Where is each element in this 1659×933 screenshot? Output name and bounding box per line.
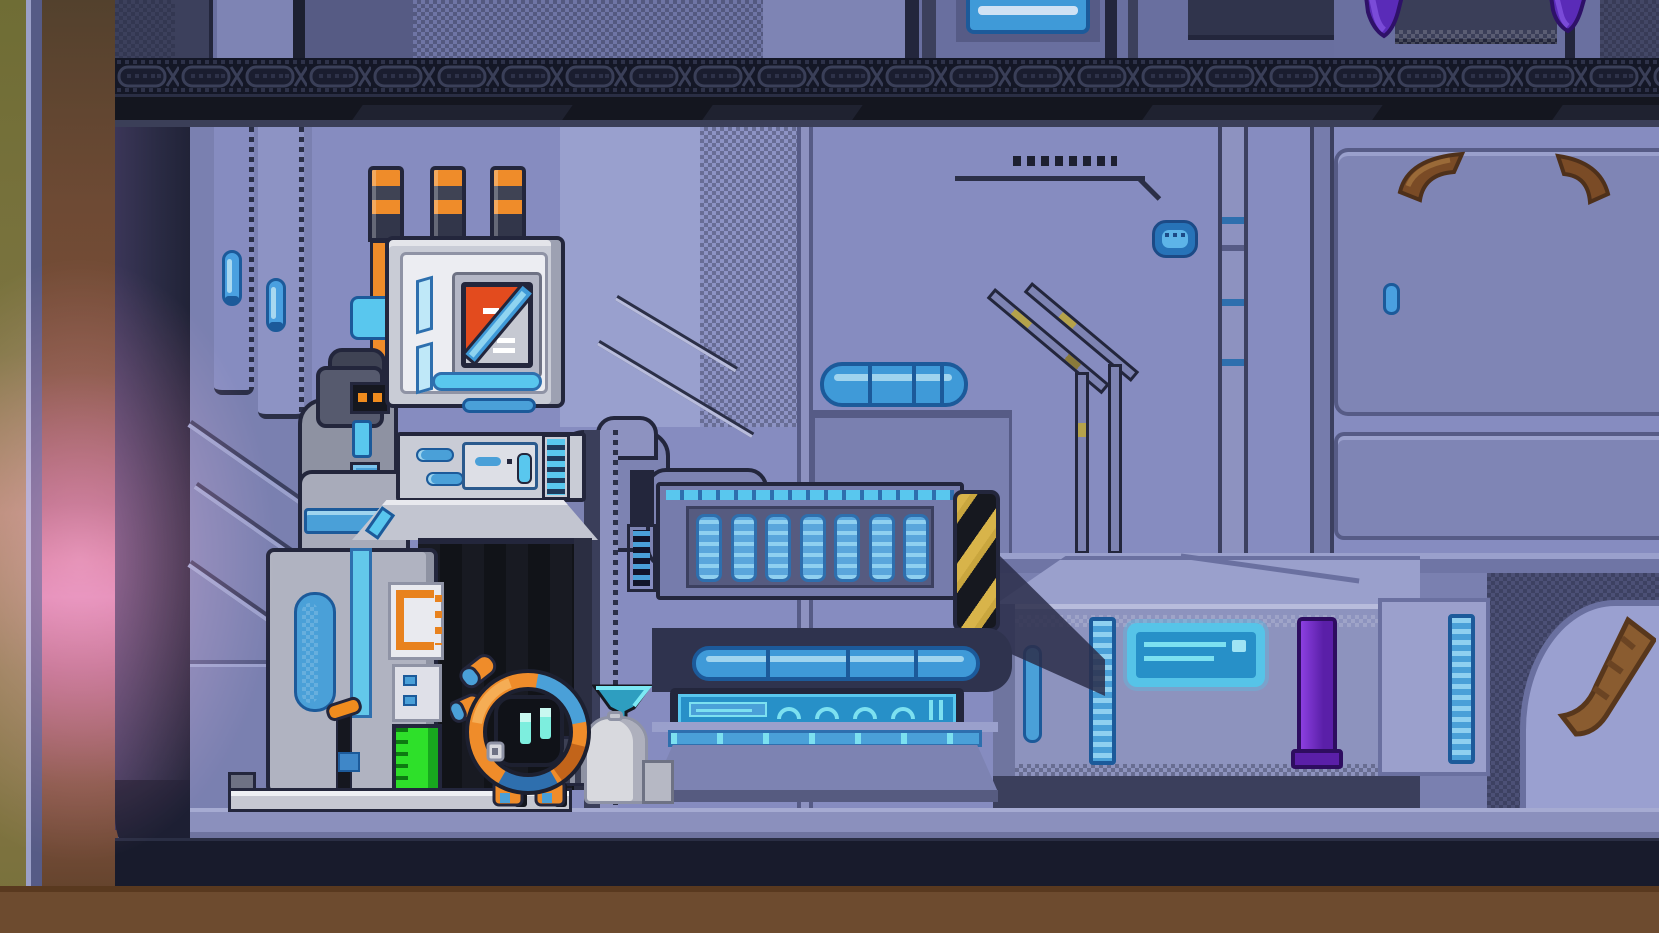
readout-arch-glyph xyxy=(815,707,839,719)
upper-pillar-6 xyxy=(1128,0,1138,58)
cabinet-lever-band xyxy=(338,752,360,772)
machine-glass-slat-1 xyxy=(416,276,433,335)
upper-recess xyxy=(1188,0,1334,40)
pipe-band-2 xyxy=(1222,299,1244,306)
machine-eye-dot-1 xyxy=(358,393,367,402)
radiator-slat xyxy=(765,514,791,582)
tube-highlight xyxy=(706,656,964,662)
tube-seam-3 xyxy=(914,650,918,677)
readout-bar-line xyxy=(696,709,752,712)
gauge-cylinder xyxy=(517,453,532,484)
upper-pillar-2 xyxy=(293,0,305,58)
tube-seam-2 xyxy=(846,650,850,677)
robot-character[interactable] xyxy=(450,645,602,817)
wall-radiator xyxy=(656,482,964,600)
machine-glass-slat-2 xyxy=(416,342,433,395)
cabinet-handle-panel xyxy=(388,582,444,660)
purple-light-bar xyxy=(1297,617,1337,755)
label-line-1 xyxy=(1144,642,1226,647)
supply-crate xyxy=(1015,604,1420,776)
window-glass-highlight xyxy=(978,6,1078,15)
wall-column-2 xyxy=(258,127,304,419)
exterior-light-column xyxy=(42,0,118,933)
ceiling-bottom-line xyxy=(115,120,1659,127)
machine-chimney-3 xyxy=(490,166,526,242)
lamp-base xyxy=(269,322,283,329)
radiator-slat xyxy=(800,514,826,582)
blue-tank xyxy=(820,362,968,407)
radiator-recess xyxy=(686,506,934,588)
ceiling-truss xyxy=(115,58,1659,94)
wall-pipe-vertical-2 xyxy=(1108,364,1122,554)
radiator-slat xyxy=(834,514,860,582)
upper-pillar-5 xyxy=(1105,0,1117,58)
label-chip xyxy=(1232,640,1246,652)
game-viewport[interactable] xyxy=(0,0,1659,933)
workbench-body xyxy=(652,745,998,792)
vent-dash-row xyxy=(1013,156,1117,166)
radiator-slot-above xyxy=(630,470,654,524)
cabinet-button-1[interactable] xyxy=(403,675,417,686)
emblem-display xyxy=(452,272,542,378)
tube-seam-1 xyxy=(766,650,770,677)
upper-panel-2 xyxy=(305,0,413,58)
tank-seam-3 xyxy=(940,366,944,403)
green-level-gauge xyxy=(392,724,442,792)
upper-pillar-3 xyxy=(905,0,919,58)
wall-lamp-capsule-2 xyxy=(266,278,286,332)
upper-deck-window xyxy=(966,0,1090,34)
purple-tentacle-left xyxy=(1360,0,1408,44)
machine-arm-slat xyxy=(352,420,372,458)
gauge-dot xyxy=(507,459,512,464)
crate-label-panel xyxy=(1127,623,1265,687)
purple-tentacle-right xyxy=(1546,0,1590,38)
wall-lamp-capsule-3 xyxy=(1383,283,1400,315)
machine-base-cabinet xyxy=(266,548,438,794)
wall-right-panel-2 xyxy=(1334,432,1659,540)
wall-pipe-vertical-1 xyxy=(1075,372,1089,554)
machine-head-slot xyxy=(432,372,542,391)
cabinet-cyan-pipe xyxy=(350,548,372,718)
hazard-post xyxy=(953,490,1000,632)
wall-lamp-capsule-1 xyxy=(222,250,242,306)
pipe-band-3 xyxy=(1222,359,1244,366)
crate-floor-shadow xyxy=(993,776,1420,808)
lamp-highlight xyxy=(271,287,276,319)
radiator-slat xyxy=(903,514,929,582)
exterior-olive-strip xyxy=(0,0,26,933)
floor-underside xyxy=(115,838,1659,886)
machine-control-band xyxy=(396,432,586,502)
workbench-tube-light xyxy=(692,646,980,681)
upper-recess-right-dither xyxy=(1395,30,1557,44)
wall-light-panel-shade xyxy=(700,127,806,427)
workbench-base-shadow xyxy=(652,790,998,802)
radiator-slat xyxy=(731,514,757,582)
root-upper-right-icon xyxy=(1552,148,1614,210)
cabinet-capsule-window xyxy=(294,592,336,712)
control-pill-2[interactable] xyxy=(426,472,464,486)
upper-pillar-1 xyxy=(175,0,213,58)
label-line-2 xyxy=(1144,656,1214,661)
upper-panel-3 xyxy=(413,0,763,58)
machine-eye-dot-2 xyxy=(373,393,382,402)
control-gauge-box xyxy=(462,442,538,490)
exterior-blue-strip xyxy=(26,0,42,933)
panel-step-line xyxy=(955,176,1145,181)
radiator-slat xyxy=(696,514,722,582)
pipe-band-1 xyxy=(1222,217,1244,224)
machine-pipe-clamp xyxy=(350,296,388,340)
machine-neck-pill xyxy=(462,398,536,413)
pipe-joint xyxy=(1222,245,1244,251)
tank-shelf xyxy=(812,410,1012,418)
cabinet-button-2[interactable] xyxy=(403,695,417,706)
readout-arch-glyph xyxy=(891,707,915,719)
wall-port-bubble xyxy=(1152,220,1198,258)
capsule-bubbles xyxy=(302,603,318,703)
upper-pillar-4 xyxy=(922,0,936,58)
readout-bars-right xyxy=(929,700,945,720)
readout-arches xyxy=(777,703,923,719)
small-crate xyxy=(642,760,674,804)
root-arch-icon xyxy=(1524,616,1656,752)
wall-pipe-column xyxy=(1218,127,1248,555)
emblem-icon xyxy=(461,282,533,368)
tank-seam-1 xyxy=(868,366,872,403)
upper-corner-recess xyxy=(1600,0,1659,58)
machine-heatsink xyxy=(542,434,570,500)
cabinet-button-panel xyxy=(392,664,442,722)
port-bubble-dots xyxy=(1165,233,1185,237)
cabinet-orange-bracket[interactable] xyxy=(396,590,434,650)
upper-panel-4 xyxy=(763,0,905,58)
gauge-pill xyxy=(475,457,501,466)
radiator-slat xyxy=(869,514,895,582)
readout-arch-glyph xyxy=(777,707,801,719)
side-panel-ladder-strip xyxy=(1448,614,1475,764)
machine-eye-panel xyxy=(350,382,390,414)
readout-bar xyxy=(689,702,767,717)
tank-highlight xyxy=(834,374,952,381)
radiator-glow-strip xyxy=(666,490,954,500)
floor-soil xyxy=(0,886,1659,933)
machine-chimney-1 xyxy=(368,166,404,242)
purple-bar-cap xyxy=(1291,749,1343,769)
readout-arch-glyph xyxy=(853,707,877,719)
machine-chimney-2 xyxy=(430,166,466,242)
crate-label-screen xyxy=(1136,632,1256,678)
bracket-dots xyxy=(435,595,442,645)
crate-side-panel xyxy=(1378,598,1490,776)
workbench-tray xyxy=(668,730,982,747)
crate-dither-bottom xyxy=(1015,764,1420,776)
bag-tie xyxy=(607,711,623,721)
lamp-highlight xyxy=(227,259,232,293)
floor-walkway xyxy=(190,808,1659,838)
lamp-base xyxy=(225,296,239,303)
root-upper-left-icon xyxy=(1392,146,1468,208)
radiator-ladder-plate xyxy=(627,524,656,592)
control-pill-1[interactable] xyxy=(416,448,454,462)
upper-panel-1 xyxy=(217,0,293,58)
tank-seam-2 xyxy=(912,366,916,403)
